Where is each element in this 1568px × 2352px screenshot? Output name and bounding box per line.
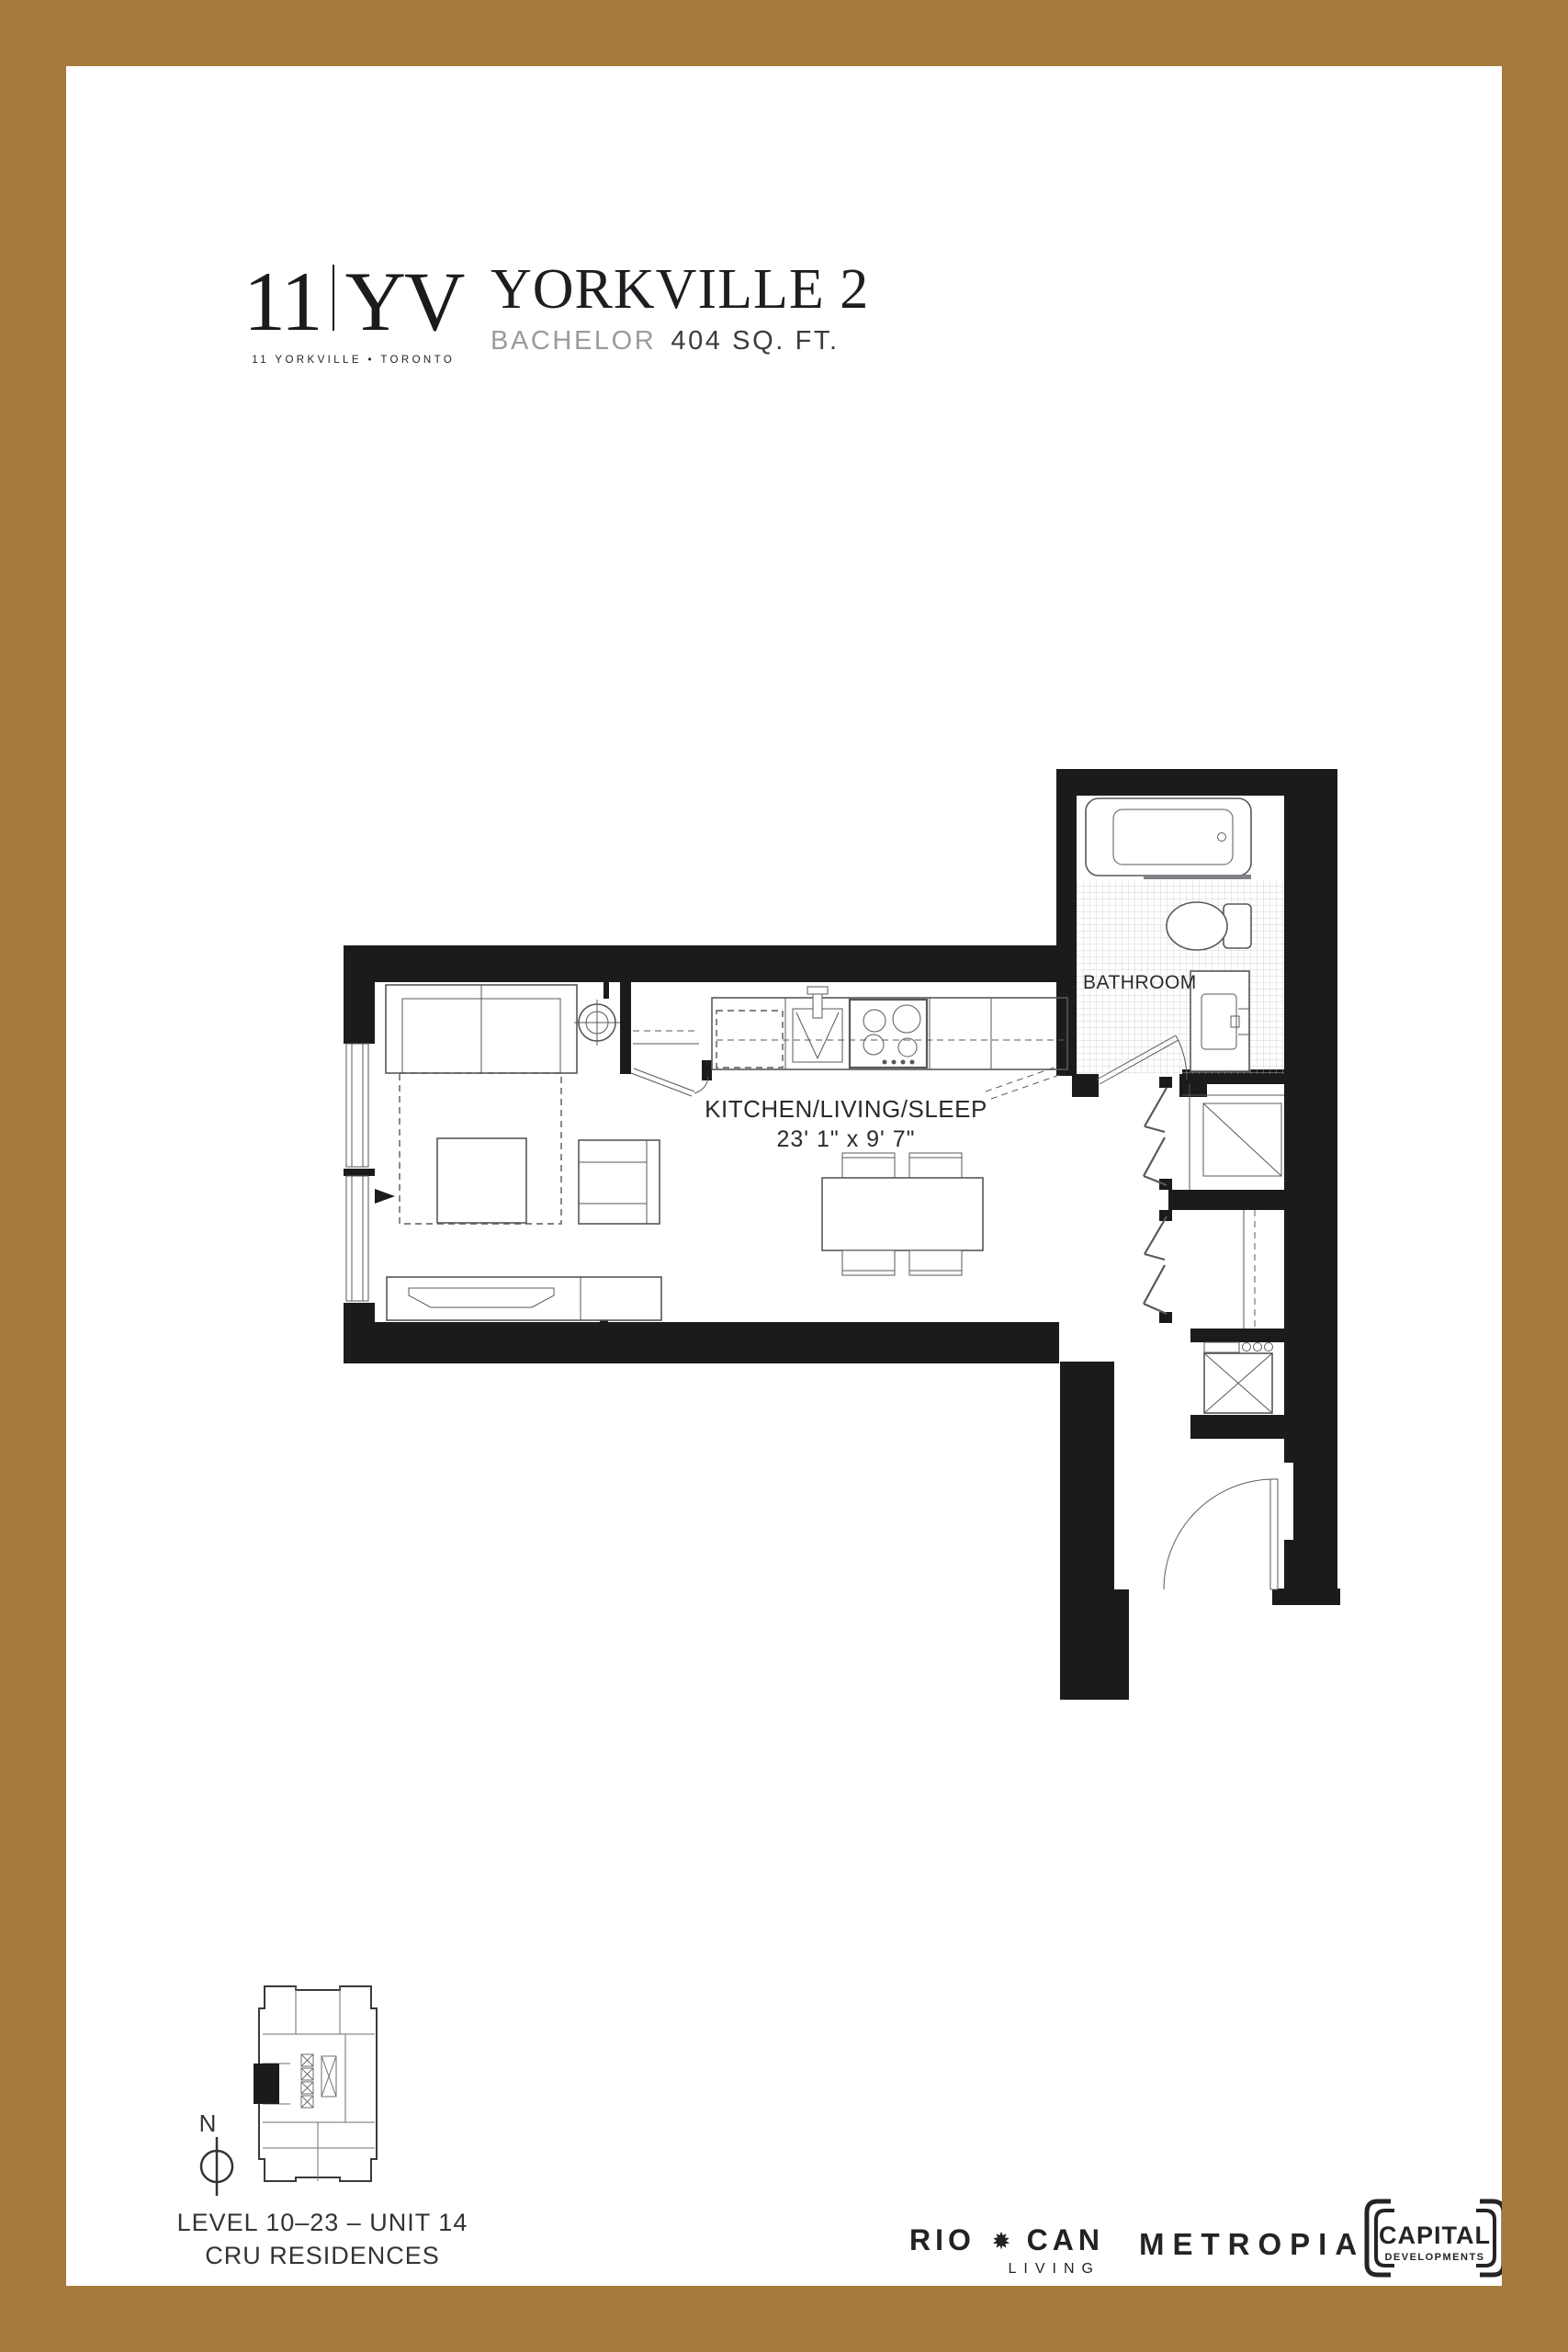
dining-table xyxy=(822,1178,983,1250)
capital-developments-logo: CAPITAL DEVELOPMENTS xyxy=(1359,2196,1511,2280)
riocan-word-left: RIO xyxy=(909,2223,976,2257)
capital-line1: CAPITAL xyxy=(1379,2222,1491,2249)
metropia-logo: METROPIA xyxy=(1139,2227,1365,2262)
bifold-door xyxy=(1144,1216,1167,1314)
page-subtitle: BACHELOR 404 SQ. FT. xyxy=(491,326,869,356)
residence-label: CRU RESIDENCES xyxy=(149,2242,496,2270)
bathtub xyxy=(1086,798,1251,879)
room-label: KITCHEN/LIVING/SLEEP xyxy=(705,1095,987,1123)
logo-letters: YV xyxy=(345,259,464,344)
kitchen-counter xyxy=(712,987,1067,1069)
coat-closet xyxy=(1244,1210,1255,1329)
north-arrow-icon: N xyxy=(189,2108,244,2199)
ceiling-light-icon xyxy=(574,1000,620,1046)
riocan-subtitle: LIVING xyxy=(909,2261,1104,2278)
disclaimer: Prices and specifications subject to cha… xyxy=(201,2295,1515,2352)
fridge xyxy=(716,1011,783,1068)
logo-number: 11 xyxy=(243,259,321,344)
riocan-living-logo: RIO CAN LIVING xyxy=(909,2223,1104,2278)
capital-line2: DEVELOPMENTS xyxy=(1384,2252,1484,2263)
unit-type-label: BACHELOR xyxy=(491,326,656,356)
brand-logo-mark: 11 YV xyxy=(243,259,463,344)
cooktop xyxy=(850,1000,927,1068)
floor-plan-svg: BATHROOM xyxy=(337,757,1348,1713)
armchair xyxy=(579,1140,660,1224)
shower-glass xyxy=(1144,875,1251,879)
sofa-bed xyxy=(386,985,577,1073)
highlighted-unit xyxy=(254,2064,279,2104)
building-interior-walls xyxy=(263,1986,375,2181)
disclaimer-line-1: Prices and specifications subject to cha… xyxy=(201,2295,1515,2341)
unit-area-label: 404 SQ. FT. xyxy=(671,326,839,356)
entry-closet xyxy=(631,1031,708,1096)
toilet xyxy=(1167,902,1251,950)
disclaimer-line-2: on the method used for calculating the f… xyxy=(201,2341,1515,2352)
bifold-door xyxy=(1144,1088,1167,1185)
logo-tagline: 11 YORKVILLE • TORONTO xyxy=(243,355,463,366)
tv-console xyxy=(387,1277,661,1320)
maple-leaf-icon xyxy=(991,2231,1011,2251)
key-plan-svg xyxy=(250,1983,388,2185)
washer-dryer xyxy=(1204,1342,1273,1413)
window-marker-icon xyxy=(375,1189,395,1204)
dining-chair xyxy=(842,1250,895,1275)
key-plan xyxy=(250,1983,388,2185)
dining-chair xyxy=(842,1153,895,1178)
floor-plan: BATHROOM xyxy=(337,757,1348,1713)
room-dimensions: 23' 1" x 9' 7" xyxy=(776,1126,915,1152)
riocan-word-right: CAN xyxy=(1027,2223,1104,2257)
title-block: YORKVILLE 2 BACHELOR 404 SQ. FT. xyxy=(491,261,869,356)
floor-plan-sheet: 11 YV 11 YORKVILLE • TORONTO YORKVILLE 2… xyxy=(0,0,1568,2352)
brand-logo: 11 YV 11 YORKVILLE • TORONTO xyxy=(243,259,463,366)
tv xyxy=(409,1288,554,1307)
north-label: N xyxy=(199,2109,217,2137)
coffee-table xyxy=(437,1138,526,1223)
bathroom-label: BATHROOM xyxy=(1083,972,1197,993)
dining-chair xyxy=(909,1250,962,1275)
logo-divider xyxy=(333,265,334,331)
page-title: YORKVILLE 2 xyxy=(491,261,869,318)
linen-closet xyxy=(1182,1084,1284,1190)
level-unit-label: LEVEL 10–23 – UNIT 14 xyxy=(149,2209,496,2237)
dining-chair xyxy=(909,1153,962,1178)
entry-door xyxy=(1164,1479,1278,1589)
vanity-sink xyxy=(1190,971,1249,1071)
dining-set xyxy=(822,1153,983,1275)
